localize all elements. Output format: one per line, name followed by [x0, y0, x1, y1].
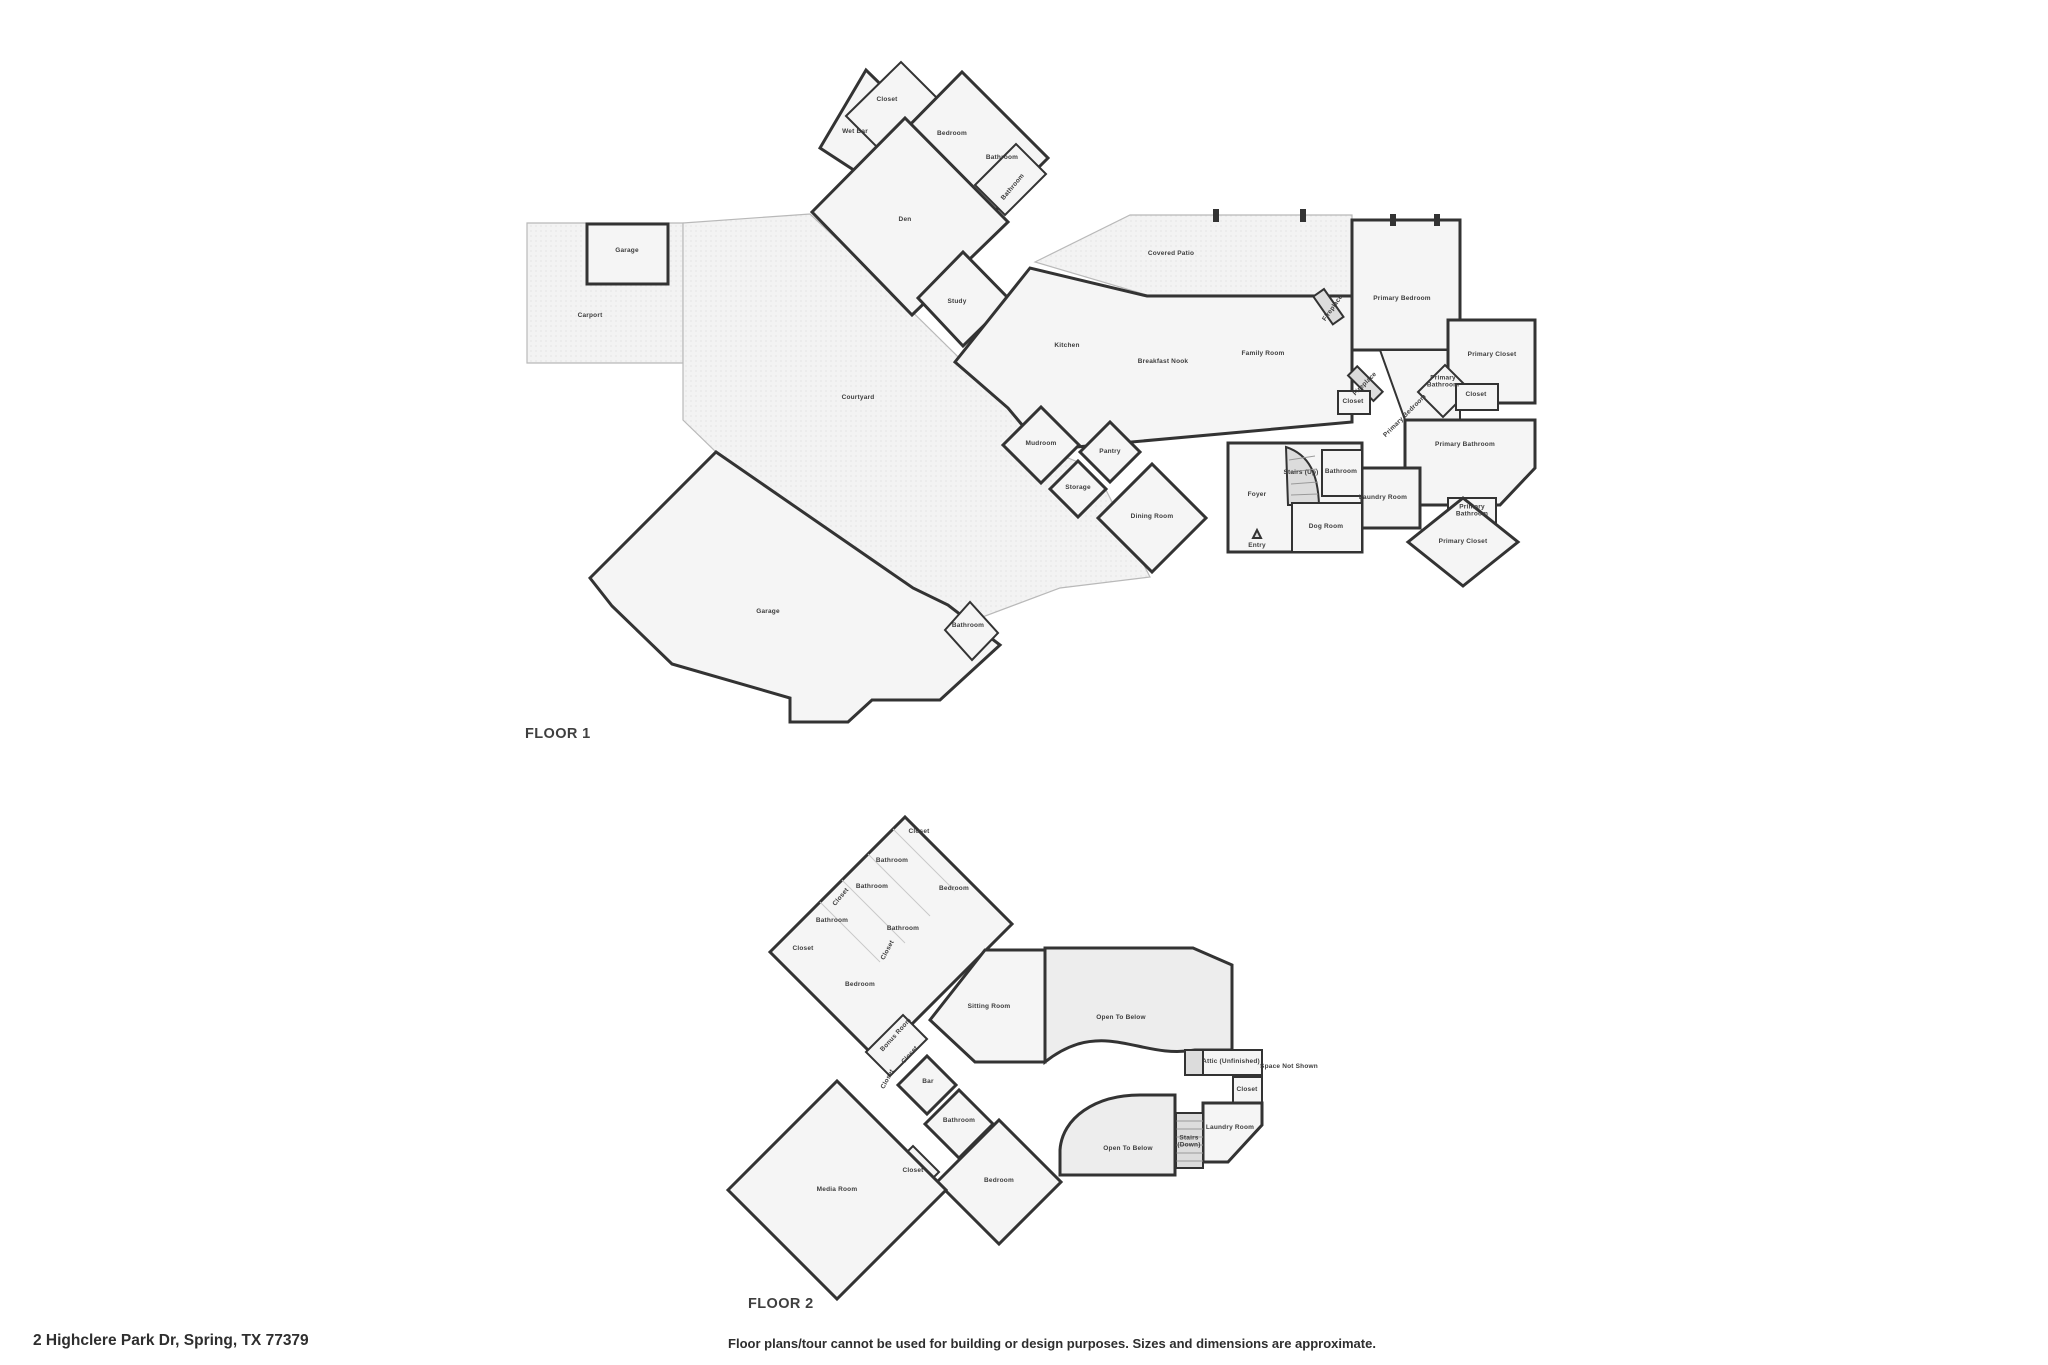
- room-label: Dog Room: [1309, 523, 1343, 530]
- room-label: Attic (Unfinished): [1202, 1058, 1260, 1065]
- room-label: Entry: [1248, 542, 1266, 549]
- room-label: Pantry: [1099, 448, 1121, 455]
- window-tick: [1434, 214, 1440, 226]
- room-label: Closet: [792, 945, 814, 952]
- room-label: Primary Bedroom: [1373, 295, 1431, 302]
- room-label: Primary Bathroom: [1435, 441, 1495, 448]
- room-label: Closet: [876, 96, 898, 103]
- floor-2-plan: [728, 817, 1262, 1299]
- room-label: Foyer: [1248, 491, 1267, 498]
- window-tick: [1300, 209, 1306, 222]
- room-label: Covered Patio: [1148, 250, 1194, 257]
- room-label: Bathroom: [856, 883, 888, 890]
- floor-1-title: FLOOR 1: [525, 726, 591, 742]
- room-label: Family Room: [1241, 350, 1284, 357]
- room-label: Courtyard: [842, 394, 875, 401]
- room-label: Primary Closet: [1468, 351, 1517, 358]
- room-label: Closet: [908, 828, 930, 835]
- room-label: Media Room: [817, 1186, 858, 1193]
- room-label: Primary Closet: [1439, 538, 1488, 545]
- room-label: Bar: [922, 1078, 934, 1085]
- room-label: Den: [899, 216, 912, 223]
- room-label: Dining Room: [1131, 513, 1174, 520]
- room-label: Stairs (Up): [1283, 469, 1318, 476]
- room-label: PrimaryBathroom: [1456, 504, 1488, 518]
- room-label: Bathroom: [1325, 468, 1357, 475]
- room-label: Open To Below: [1096, 1014, 1146, 1021]
- room-label: Bathroom: [952, 622, 984, 629]
- room-label: Bedroom: [845, 981, 875, 988]
- floor-plan-canvas: ClosetWet BarBedroomBathroomBathroomDenS…: [0, 0, 2048, 1365]
- room-label: Space Not Shown: [1260, 1063, 1318, 1070]
- room-label: Laundry Room: [1359, 494, 1407, 501]
- laundry-room-2: [1203, 1103, 1262, 1162]
- room-label: Closet: [1342, 398, 1364, 405]
- room-label: Bedroom: [939, 885, 969, 892]
- disclaimer-text: Floor plans/tour cannot be used for buil…: [722, 1336, 1382, 1351]
- floor-2-title: FLOOR 2: [748, 1296, 814, 1312]
- room-label: Closet: [1236, 1086, 1258, 1093]
- attic-ramp: [1185, 1050, 1203, 1075]
- room-label: Breakfast Nook: [1138, 358, 1189, 365]
- open-to-below-top: [1045, 948, 1232, 1062]
- window-tick: [1390, 214, 1396, 226]
- room-label: Bedroom: [937, 130, 967, 137]
- room-label: Closet: [880, 1068, 896, 1090]
- room-label: Stairs(Down): [1177, 1135, 1200, 1149]
- room-label: Bathroom: [986, 154, 1018, 161]
- room-label: Bedroom: [984, 1177, 1014, 1184]
- room-label: Bathroom: [876, 857, 908, 864]
- property-address: 2 Highclere Park Dr, Spring, TX 77379: [33, 1332, 309, 1350]
- room-label: Carport: [578, 312, 604, 319]
- primary-bathroom-room: [1405, 420, 1535, 505]
- open-to-below-bottom: [1060, 1095, 1175, 1175]
- room-label: Study: [947, 298, 966, 305]
- room-label: Bathroom: [887, 925, 919, 932]
- room-label: Sitting Room: [968, 1003, 1011, 1010]
- room-label: Storage: [1065, 484, 1091, 491]
- room-label: Open To Below: [1103, 1145, 1153, 1152]
- room-label: Mudroom: [1025, 440, 1056, 447]
- room-label: PrimaryBathroom: [1427, 375, 1459, 389]
- room-label: Kitchen: [1054, 342, 1079, 349]
- room-label: Garage: [615, 247, 639, 254]
- room-label: Wet Bar: [842, 128, 868, 135]
- primary-bedroom-room: [1352, 220, 1460, 350]
- garage-top-room: [587, 224, 668, 284]
- floor-1-plan: [527, 62, 1535, 722]
- room-label: Bathroom: [943, 1117, 975, 1124]
- room-label: Closet: [902, 1167, 924, 1174]
- window-tick: [1213, 209, 1219, 222]
- room-label: Laundry Room: [1206, 1124, 1254, 1131]
- floor-plan-page: { "address": "2 Highclere Park Dr, Sprin…: [0, 0, 2048, 1365]
- room-label: Closet: [1465, 391, 1487, 398]
- room-label: Bathroom: [816, 917, 848, 924]
- room-label: Garage: [756, 608, 780, 615]
